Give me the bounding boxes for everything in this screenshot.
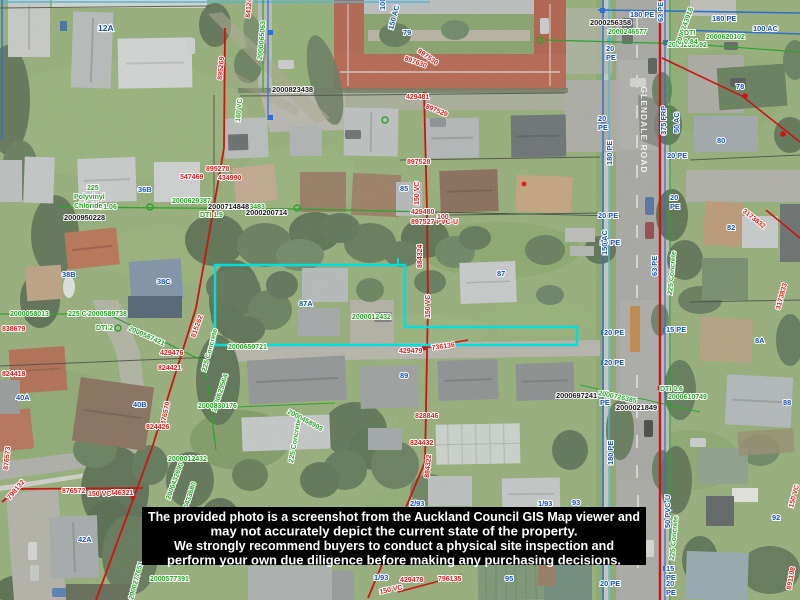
svg-text:225: 225 (87, 185, 99, 192)
svg-text:87: 87 (497, 269, 505, 278)
svg-text:1/93: 1/93 (538, 499, 552, 508)
svg-text:20: 20 (606, 44, 614, 53)
svg-text:GLENDALE ROAD: GLENDALE ROAD (639, 86, 649, 173)
svg-text:20 PE: 20 PE (604, 358, 624, 367)
svg-text:2000200714: 2000200714 (246, 208, 288, 217)
svg-text:429478: 429478 (400, 577, 423, 584)
svg-text:2000256358: 2000256358 (590, 18, 631, 27)
svg-text:100: 100 (437, 214, 449, 221)
svg-text:2/93: 2/93 (410, 499, 424, 508)
svg-text:2000697241: 2000697241 (556, 391, 597, 400)
svg-text:180 PE: 180 PE (712, 14, 736, 23)
svg-text:PE: PE (670, 202, 680, 211)
svg-text:838679: 838679 (2, 326, 25, 333)
svg-text:85: 85 (400, 184, 408, 193)
svg-text:88: 88 (783, 398, 791, 407)
svg-text:We strongly recommend buyers t: We strongly recommend buyers to conduct … (174, 538, 614, 553)
svg-text:824432: 824432 (410, 440, 433, 447)
svg-text:100 AC: 100 AC (753, 24, 778, 33)
svg-text:20: 20 (670, 193, 678, 202)
svg-text:PE: PE (598, 123, 608, 132)
svg-text:may not accurately depict the: may not accurately depict the current st… (211, 524, 578, 539)
svg-text:2000629387: 2000629387 (172, 198, 211, 205)
svg-text:2000714848: 2000714848 (208, 202, 249, 211)
svg-text:40B: 40B (133, 400, 147, 409)
svg-text:180 PE: 180 PE (606, 441, 615, 465)
svg-text:15: 15 (666, 564, 674, 573)
svg-text:2000012432: 2000012432 (168, 456, 207, 463)
svg-text:Chloride: Chloride (74, 203, 102, 210)
svg-text:20 PE: 20 PE (600, 579, 620, 588)
svg-text:150 VC: 150 VC (88, 491, 111, 498)
svg-text:PE: PE (666, 573, 676, 582)
svg-text:2000589738: 2000589738 (88, 311, 127, 318)
svg-text:42A: 42A (78, 535, 92, 544)
svg-text:434990: 434990 (218, 175, 241, 182)
svg-text:897527 PVC-U: 897527 PVC-U (411, 219, 458, 226)
svg-text:78: 78 (736, 82, 744, 91)
svg-text:2000830176: 2000830176 (198, 403, 237, 410)
svg-text:Polyvinyl: Polyvinyl (74, 194, 105, 201)
svg-text:93: 93 (572, 498, 580, 507)
svg-text:429479: 429479 (399, 348, 422, 355)
svg-text:100: 100 (378, 0, 387, 10)
svg-text:876572: 876572 (62, 488, 85, 495)
svg-text:824426: 824426 (146, 424, 169, 431)
svg-text:895270: 895270 (206, 166, 229, 173)
svg-text:429481: 429481 (406, 94, 429, 101)
svg-text:828846: 828846 (415, 413, 438, 420)
svg-text:DTI 0.6: DTI 0.6 (660, 386, 683, 393)
svg-text:PE: PE (606, 53, 616, 62)
svg-text:20: 20 (598, 114, 606, 123)
svg-text:82: 82 (727, 223, 735, 232)
svg-text:20 PE: 20 PE (667, 151, 687, 160)
svg-text:429480: 429480 (411, 209, 434, 216)
svg-text:796135: 796135 (438, 576, 461, 583)
svg-text:perform your own due diligence: perform your own due diligence before ma… (167, 553, 621, 568)
svg-text:36B: 36B (138, 185, 152, 194)
svg-text:429476: 429476 (160, 350, 183, 357)
svg-text:2000021849: 2000021849 (616, 403, 657, 412)
svg-text:150 VC: 150 VC (414, 182, 421, 205)
svg-text:547469: 547469 (180, 174, 203, 181)
svg-text:PE: PE (600, 398, 610, 407)
svg-text:2000012432: 2000012432 (352, 314, 391, 321)
svg-text:DTI: DTI (684, 30, 695, 37)
svg-text:446321: 446321 (110, 490, 133, 497)
svg-text:897528: 897528 (407, 159, 430, 166)
svg-text:15 PE: 15 PE (666, 325, 686, 334)
svg-text:The provided photo is a screen: The provided photo is a screenshot from … (148, 509, 640, 524)
svg-text:DTI 2: DTI 2 (96, 325, 113, 332)
svg-text:1/93: 1/93 (374, 573, 388, 582)
svg-text:2000620102: 2000620102 (706, 34, 745, 41)
svg-text:2000058013: 2000058013 (10, 311, 49, 318)
svg-text:150 VC: 150 VC (425, 295, 432, 318)
svg-text:180 PE: 180 PE (630, 10, 654, 19)
svg-text:375 FRP: 375 FRP (659, 106, 668, 135)
svg-text:63 PE: 63 PE (656, 2, 665, 22)
svg-text:824421: 824421 (158, 365, 181, 372)
svg-text:87A: 87A (299, 299, 313, 308)
svg-text:0.84: 0.84 (684, 39, 698, 46)
svg-text:50 PVC-U: 50 PVC-U (663, 495, 672, 528)
svg-text:40A: 40A (16, 393, 30, 402)
svg-text:2000610749: 2000610749 (668, 394, 707, 401)
svg-text:824418: 824418 (2, 371, 25, 378)
svg-text:PE: PE (666, 588, 676, 597)
svg-text:2000246577: 2000246577 (608, 29, 647, 36)
svg-text:12A: 12A (98, 23, 114, 33)
svg-text:80: 80 (717, 136, 725, 145)
svg-text:20 PE: 20 PE (598, 211, 618, 220)
svg-text:79: 79 (403, 28, 411, 37)
svg-text:38C: 38C (157, 277, 171, 286)
svg-text:89: 89 (400, 371, 408, 380)
svg-text:95: 95 (505, 574, 513, 583)
svg-text:2000577391: 2000577391 (150, 576, 189, 583)
svg-text:50 AC: 50 AC (672, 112, 681, 133)
svg-text:20 PE: 20 PE (604, 328, 624, 337)
svg-text:38B: 38B (62, 270, 76, 279)
svg-text:2000950228: 2000950228 (64, 213, 105, 222)
svg-text:2000823438: 2000823438 (272, 85, 313, 94)
svg-text:DTI 1.9: DTI 1.9 (200, 212, 223, 219)
svg-text:2000650721: 2000650721 (228, 344, 267, 351)
svg-text:92: 92 (772, 513, 780, 522)
svg-text:63 PE: 63 PE (650, 256, 659, 276)
svg-text:180 PE: 180 PE (605, 141, 614, 165)
svg-text:150 AC: 150 AC (600, 230, 609, 255)
svg-text:884324: 884324 (417, 245, 424, 268)
svg-text:8A: 8A (755, 336, 765, 345)
